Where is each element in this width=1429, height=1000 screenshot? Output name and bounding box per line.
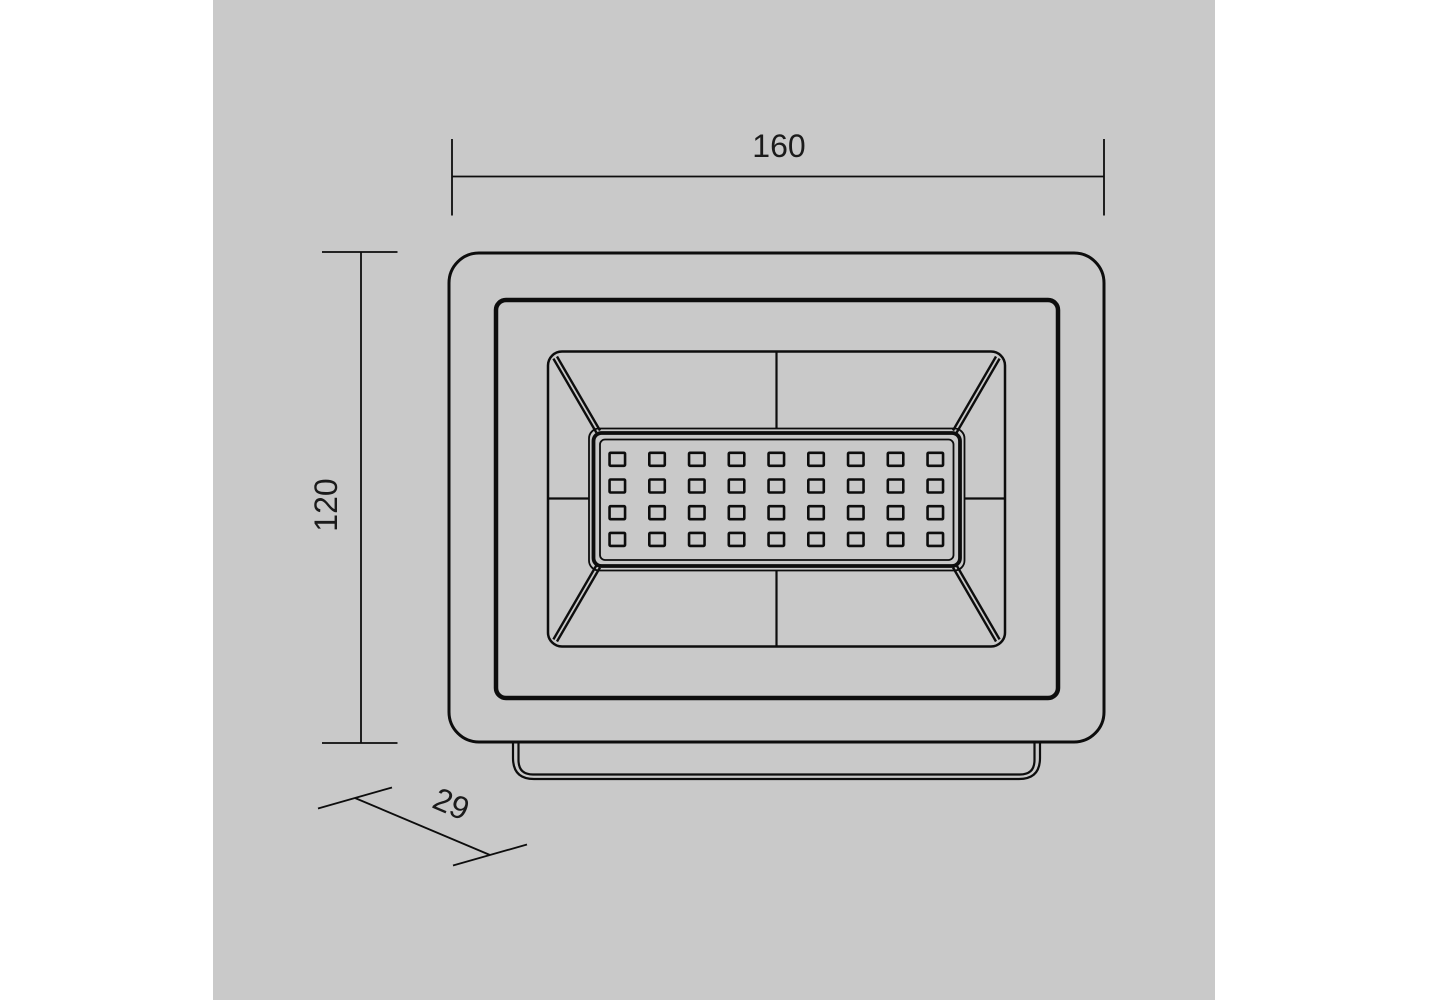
dimension-width-label: 160 bbox=[752, 128, 805, 164]
floodlight-technical-drawing: 160 120 29 bbox=[0, 0, 1429, 1000]
drawing-canvas: 160 120 29 bbox=[0, 0, 1429, 1000]
dimension-height-label: 120 bbox=[308, 478, 344, 531]
paper-background bbox=[213, 0, 1215, 1000]
